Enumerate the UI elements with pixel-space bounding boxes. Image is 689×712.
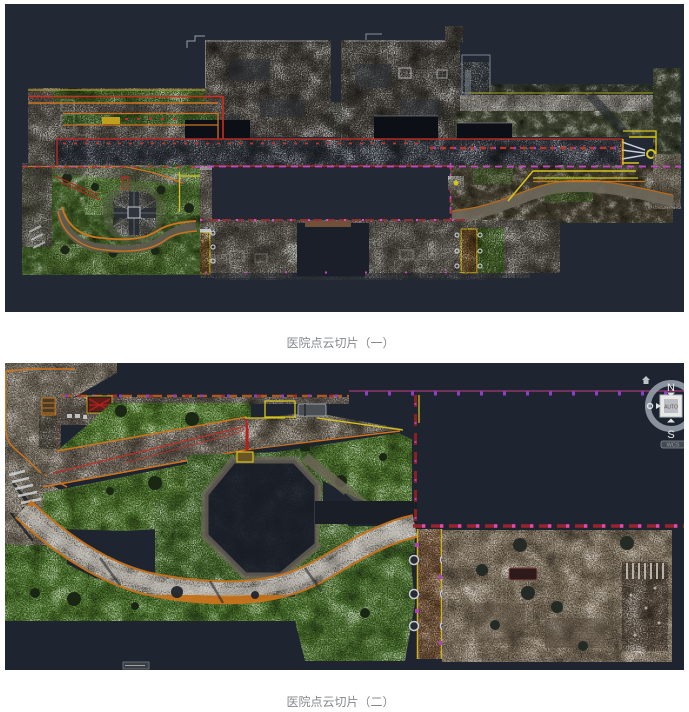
svg-text:WCS: WCS [667, 443, 680, 449]
svg-text:N: N [667, 382, 675, 394]
svg-text:S: S [667, 429, 674, 441]
svg-text:AUTO: AUTO [664, 405, 678, 411]
